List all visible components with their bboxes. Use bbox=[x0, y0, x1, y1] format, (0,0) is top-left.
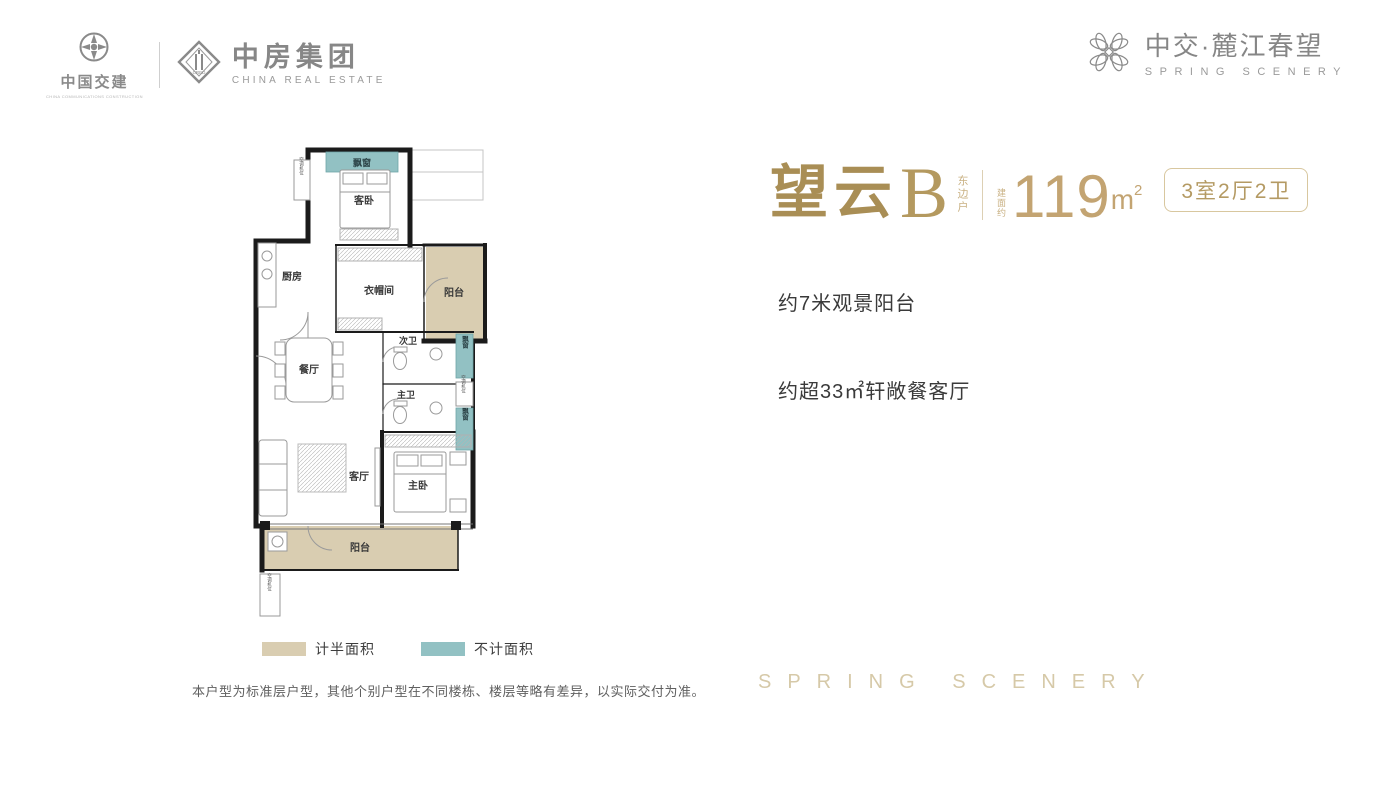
wall-chunk bbox=[451, 521, 461, 530]
cre-subtitle: CHINA REAL ESTATE bbox=[232, 75, 386, 86]
bed-icon bbox=[394, 452, 466, 512]
header-divider bbox=[159, 42, 160, 88]
developer-logos: 中国交建 CHINA COMMUNICATIONS CONSTRUCTION C… bbox=[46, 30, 386, 99]
brand-name: 中交·麓江春望 bbox=[1145, 32, 1348, 60]
excluded-area-label: 不计面积 bbox=[474, 639, 534, 659]
cre-name: 中房集团 bbox=[232, 43, 386, 71]
room-label-master-bedroom: 主卧 bbox=[408, 479, 428, 492]
ccc-logo: 中国交建 CHINA COMMUNICATIONS CONSTRUCTION bbox=[46, 30, 143, 99]
furniture bbox=[258, 170, 471, 551]
unit-name-letter: B bbox=[900, 158, 948, 228]
toilet-icon bbox=[394, 401, 443, 424]
legend: 计半面积 不计面积 bbox=[262, 639, 580, 659]
area-exponent: 2 bbox=[1134, 182, 1142, 199]
equipment-platform bbox=[411, 150, 483, 200]
title-divider bbox=[982, 170, 983, 220]
poster-page: 中国交建 CHINA COMMUNICATIONS CONSTRUCTION C… bbox=[0, 0, 1400, 788]
excluded-area-swatch bbox=[421, 642, 465, 656]
unit-title-block: 望云 B 东边户 建面约 119 m2 3室2厅2卫 bbox=[770, 150, 1308, 228]
room-label-cloakroom: 衣帽间 bbox=[364, 284, 394, 297]
rug bbox=[298, 444, 346, 492]
room-label-balcony-bottom: 阳台 bbox=[350, 541, 370, 554]
ccc-name: 中国交建 bbox=[60, 71, 128, 92]
washer-icon bbox=[268, 532, 287, 551]
room-label-bath-master: 主卫 bbox=[397, 389, 415, 400]
wardrobe bbox=[340, 229, 398, 240]
room-label-living: 客厅 bbox=[348, 470, 369, 483]
room-label-balcony-upper: 阳台 bbox=[444, 286, 464, 299]
unit-name-zh: 望云 bbox=[770, 158, 898, 228]
room-label-ac-right: 空调机位 bbox=[461, 374, 467, 394]
half-area-swatch bbox=[262, 642, 306, 656]
wall-chunk bbox=[260, 521, 270, 530]
diamond-icon: CRED bbox=[176, 39, 222, 90]
wardrobe bbox=[385, 435, 471, 447]
area-value: 119 bbox=[1012, 166, 1111, 228]
area-unit: m2 bbox=[1111, 163, 1143, 228]
room-label-bath-second: 次卫 bbox=[399, 335, 417, 346]
room-label-kitchen: 厨房 bbox=[282, 270, 302, 283]
project-brand: 中交·麓江春望 SPRING SCENERY bbox=[1085, 28, 1348, 81]
compass-icon bbox=[77, 30, 111, 69]
sofa-icon bbox=[259, 440, 287, 516]
room-label-bay-top: 飘窗 bbox=[353, 157, 371, 168]
tv-cabinet bbox=[375, 448, 380, 506]
flower-icon bbox=[1085, 28, 1133, 81]
closet bbox=[338, 248, 422, 261]
highlight-balcony: 约7米观景阳台 bbox=[778, 287, 916, 316]
area-prefix: 建面约 bbox=[995, 188, 1008, 218]
disclaimer-text: 本户型为标准层户型，其他个别户型在不同楼栋、楼层等略有差异，以实际交付为准。 bbox=[192, 681, 705, 700]
floor-plan: 飘窗 客卧 厨房 衣帽间 阳台 餐厅 次卫 主卫 飘窗 空调机位 飘窗 客厅 主… bbox=[248, 142, 498, 622]
kitchen-counter bbox=[258, 243, 276, 307]
cre-monogram: CRED bbox=[193, 70, 207, 75]
closet bbox=[338, 318, 382, 330]
cre-logo: CRED 中房集团 CHINA REAL ESTATE bbox=[176, 39, 386, 90]
room-label-ac-top: 空调机位 bbox=[299, 156, 305, 176]
ccc-subtitle: CHINA COMMUNICATIONS CONSTRUCTION bbox=[46, 94, 143, 99]
half-area-label: 计半面积 bbox=[315, 639, 375, 659]
toilet-icon bbox=[394, 347, 443, 370]
watermark-text: SPRING SCENERY bbox=[758, 671, 1161, 694]
room-label-ac-bottom: 空调机位 bbox=[267, 572, 273, 592]
highlight-living: 约超33㎡轩敞餐客厅 bbox=[778, 375, 970, 404]
room-label-guest-bedroom: 客卧 bbox=[353, 194, 374, 207]
room-label-dining: 餐厅 bbox=[298, 363, 319, 376]
layout-badge: 3室2厅2卫 bbox=[1164, 168, 1308, 212]
unit-side-note: 东边户 bbox=[954, 175, 970, 214]
brand-subtitle: SPRING SCENERY bbox=[1145, 66, 1348, 78]
